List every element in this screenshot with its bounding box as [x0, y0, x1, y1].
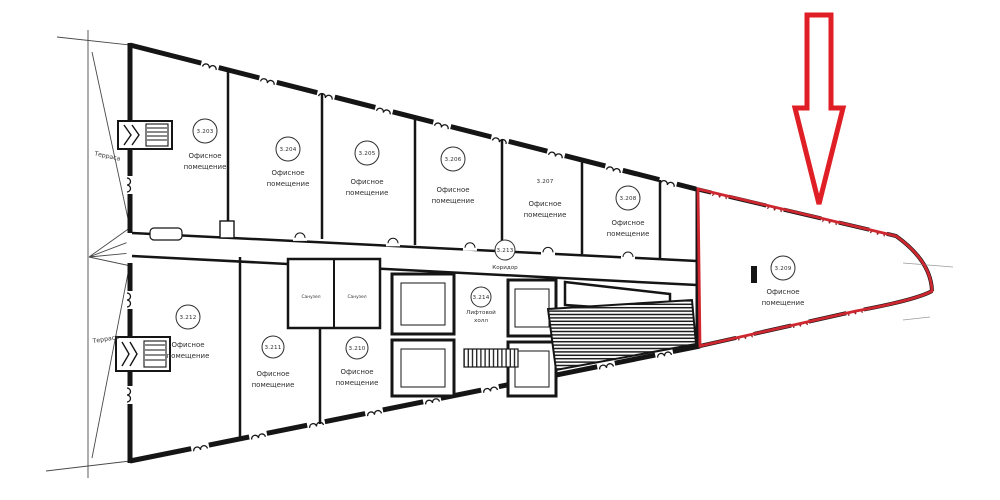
room-type-label: помещение	[252, 381, 295, 389]
room-number: 3.212	[179, 315, 196, 321]
room-number: 3.208	[619, 196, 636, 202]
door-icon	[541, 247, 555, 255]
window-icon	[258, 73, 278, 87]
room-3204: 3.204 Офисное помещение	[267, 137, 310, 188]
door-icon	[463, 243, 477, 251]
room-type-label: Офисное	[528, 200, 561, 208]
entrance-symbol-top	[118, 121, 172, 149]
column-mark	[751, 266, 757, 283]
terrace-label-top: Терраса	[93, 150, 121, 163]
window-icon	[316, 87, 336, 101]
site-top-line	[57, 37, 130, 45]
room-type-label: помещение	[184, 163, 227, 171]
entry-fan-lines	[89, 227, 131, 266]
corridor-number: 3.213	[496, 248, 513, 254]
room-type-label: Офисное	[271, 169, 304, 177]
window-icon	[126, 291, 136, 309]
room-type-label: Офисное	[436, 186, 469, 194]
window-icon	[432, 117, 452, 131]
room-number: 3.209	[774, 266, 791, 272]
elevator-cab	[401, 283, 445, 325]
room-3206: 3.206 Офисное помещение	[432, 147, 475, 205]
door-icon	[293, 233, 307, 241]
room-3208: 3.208 Офисное помещение	[607, 186, 650, 238]
room-type-label: Офисное	[611, 219, 644, 227]
room-number: 3.203	[196, 129, 213, 135]
table-symbol	[150, 228, 182, 240]
room-type-label: помещение	[167, 352, 210, 360]
elevator-cab	[401, 349, 445, 387]
room-number: 3.210	[348, 346, 365, 352]
left-entrance-gap	[127, 233, 134, 263]
elevator-cab	[515, 351, 549, 387]
room-3203: 3.203 Офисное помещение	[184, 119, 227, 171]
terrace-boundary-lines	[46, 30, 131, 478]
room-number: 3.205	[358, 151, 375, 157]
room-type-label: Офисное	[350, 178, 383, 186]
room-3210: 3.210 Офисное помещение	[336, 337, 379, 387]
sanitary-core: Санузел Санузел	[288, 259, 380, 328]
window-icon	[374, 102, 394, 116]
stair-block	[548, 282, 696, 370]
room-type-label: Офисное	[256, 370, 289, 378]
top-wall-bow	[696, 189, 932, 291]
room-type-label: помещение	[524, 211, 567, 219]
sanitary-room-label: Санузел	[347, 294, 366, 300]
lift-hall-number: 3.214	[472, 295, 489, 301]
corridor-end-detail	[220, 221, 234, 238]
door-icon	[386, 238, 400, 246]
room-3212: 3.212 Офисное помещение	[167, 305, 210, 360]
elevator-cab	[515, 289, 549, 327]
room-3207: 3.207 Офисное помещение	[524, 179, 567, 219]
sanitary-room-label: Санузел	[301, 294, 320, 300]
room-type-label: помещение	[762, 299, 805, 307]
room-type-label: Офисное	[340, 368, 373, 376]
floor-plan-svg: Санузел Санузел Терраса Те	[0, 0, 1000, 500]
room-number: 3.206	[444, 157, 461, 163]
window-icon	[604, 161, 624, 175]
room-3205: 3.205 Офисное помещение	[346, 141, 389, 197]
room-type-label: помещение	[432, 197, 475, 205]
room-type-label: помещение	[607, 230, 650, 238]
entrance-symbol-bottom	[116, 337, 170, 371]
room-type-label: помещение	[336, 379, 379, 387]
window-icon	[200, 58, 220, 72]
down-arrow-icon	[795, 15, 843, 204]
room-type-label: помещение	[267, 180, 310, 188]
window-icon	[126, 386, 136, 404]
highlighted-room-outline	[698, 189, 932, 346]
room-number: 3.207	[536, 179, 553, 185]
lift-hall-label: Лифтовой	[466, 309, 496, 316]
window-icon	[306, 416, 326, 429]
window-icon	[546, 146, 566, 160]
window-icon	[248, 428, 268, 441]
floor-plan-screenshot: Санузел Санузел Терраса Те	[0, 0, 1000, 500]
stair-hatch-small	[464, 349, 518, 367]
window-icon	[126, 176, 136, 194]
room-3211: 3.211 Офисное помещение	[252, 336, 295, 389]
room-3209-highlighted: 3.209 Офисное помещение	[762, 256, 805, 307]
lift-hall-label: холл	[474, 318, 488, 324]
room-type-label: помещение	[346, 189, 389, 197]
room-number: 3.211	[264, 345, 281, 351]
room-type-label: Офисное	[171, 341, 204, 349]
room-number: 3.204	[279, 147, 296, 153]
corridor-label-group: 3.213 Коридор	[492, 240, 518, 271]
lift-hall-label-group: 3.214 Лифтовой холл	[466, 287, 496, 324]
corridor-label: Коридор	[492, 265, 518, 271]
door-icon	[621, 252, 635, 260]
window-icon	[490, 132, 510, 146]
window-icon	[364, 405, 384, 418]
window-icon	[480, 381, 500, 394]
room-type-label: Офисное	[188, 152, 221, 160]
window-icon	[190, 440, 210, 453]
room-type-label: Офисное	[766, 288, 799, 296]
